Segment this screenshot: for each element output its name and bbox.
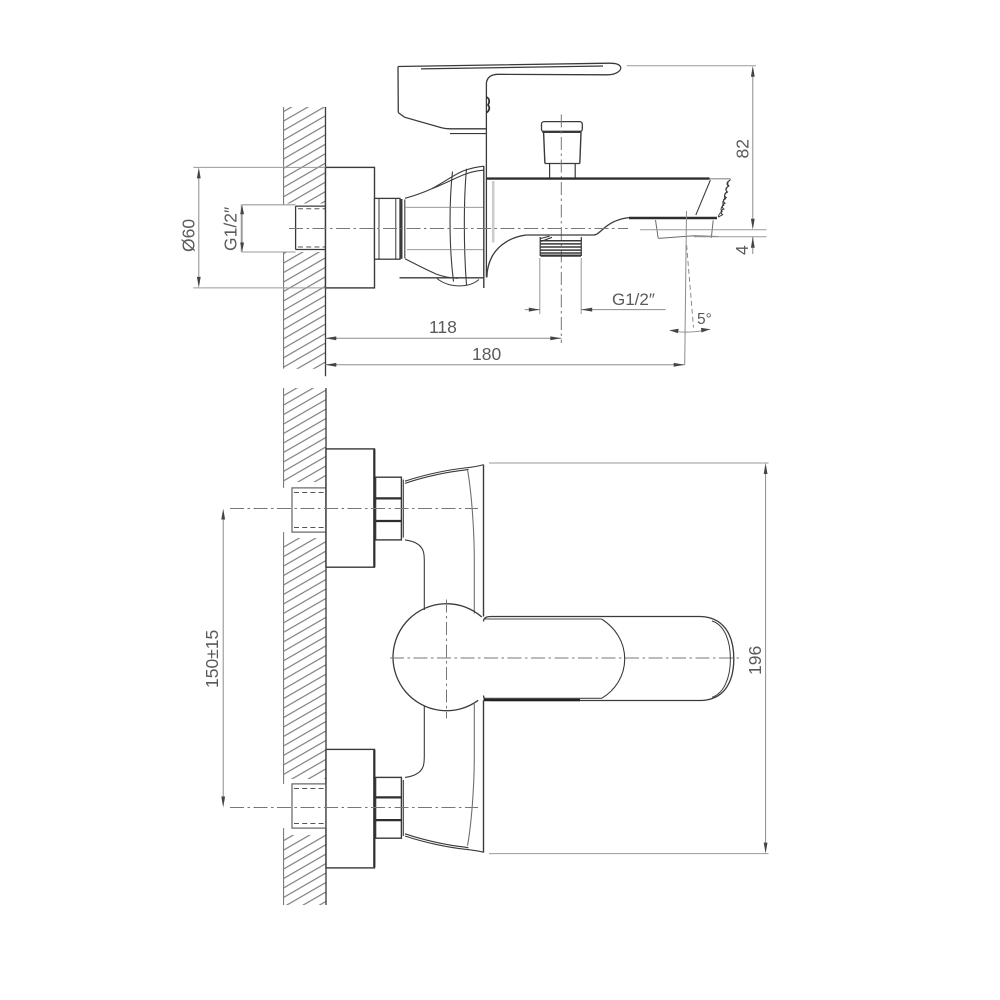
svg-text:Ø60: Ø60	[179, 219, 199, 252]
svg-text:G1/2″: G1/2″	[221, 207, 241, 251]
svg-text:180: 180	[472, 344, 501, 364]
svg-text:150±15: 150±15	[202, 630, 222, 688]
svg-text:4: 4	[732, 245, 752, 255]
svg-text:82: 82	[733, 139, 753, 158]
svg-text:196: 196	[745, 646, 765, 675]
svg-text:118: 118	[429, 317, 457, 337]
svg-text:5°: 5°	[697, 311, 712, 328]
svg-text:G1/2″: G1/2″	[612, 290, 655, 309]
